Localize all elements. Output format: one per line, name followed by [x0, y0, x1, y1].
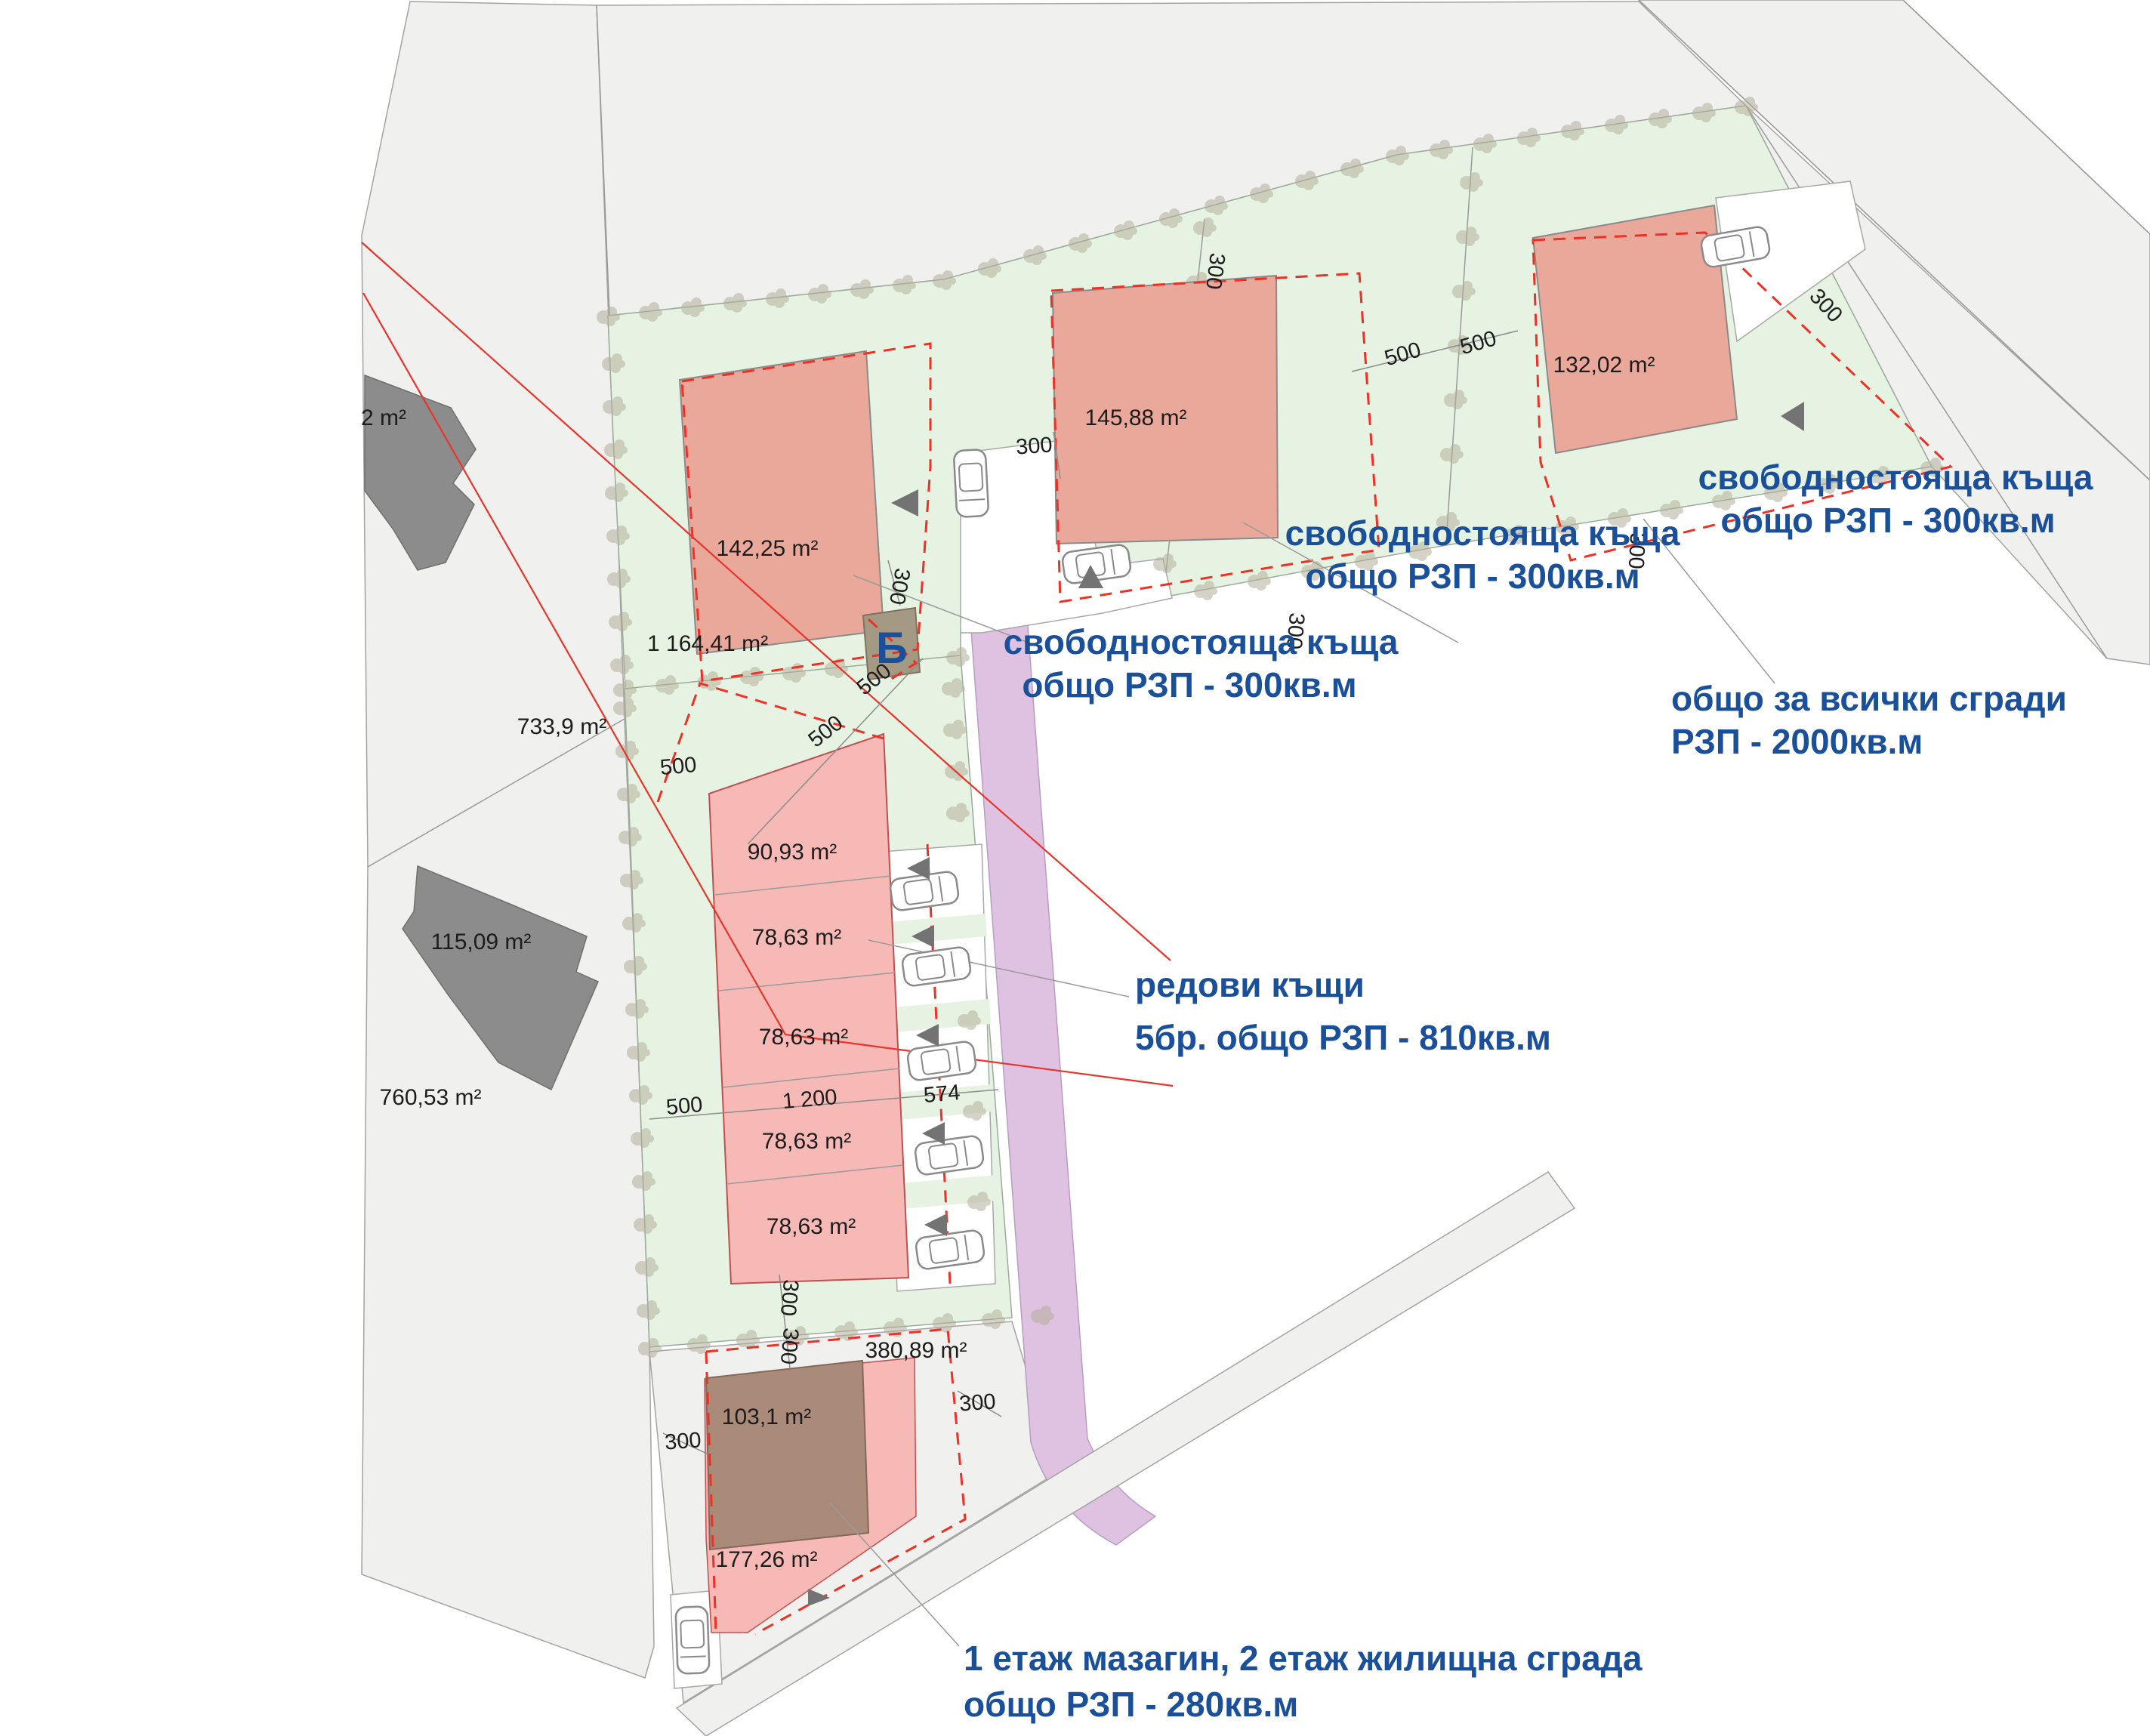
building-103: [706, 1361, 868, 1549]
annotation-rowhouses-line1: редови къщи: [1135, 965, 1365, 1004]
area-label-78-1: 78,63 m²: [752, 925, 841, 950]
dim-300: 300: [1201, 251, 1229, 291]
annotation-detached-lower-line2: общо РЗП - 300кв.м: [1022, 665, 1356, 705]
dim-300: 300: [1015, 433, 1053, 459]
annotation-detached-middle-line1: свободностояща къща: [1285, 513, 1680, 553]
dim-300: 300: [776, 1327, 803, 1365]
area-label-115: 115,09 m²: [431, 930, 532, 954]
car-icon: [675, 1606, 709, 1673]
dim-1200: 1 200: [782, 1085, 838, 1114]
area-label-733: 733,9 m²: [517, 714, 606, 739]
dim-300: 300: [776, 1278, 803, 1317]
annotation-total-line1: общо за всички сгради: [1671, 679, 2067, 718]
dim-300: 300: [958, 1389, 997, 1416]
annotation-detached-top-right-line1: свободностояща къща: [1698, 458, 2093, 497]
dim-574: 574: [923, 1081, 961, 1108]
annotation-rowhouses-line2: 5бр. общо РЗП - 810кв.м: [1135, 1018, 1551, 1057]
site-plan-svg: 142,25 m² 145,88 m² 132,02 m² 1 164,41 m…: [0, 0, 2150, 1736]
area-label-132: 132,02 m²: [1553, 353, 1655, 378]
area-label-103: 103,1 m²: [722, 1405, 811, 1429]
annotation-detached-lower-line1: свободностояща къща: [1004, 622, 1399, 661]
annotation-total-line2: РЗП - 2000кв.м: [1671, 722, 1923, 761]
dim-500: 500: [665, 1093, 704, 1120]
area-label-90: 90,93 m²: [748, 840, 837, 865]
area-label-78-2: 78,63 m²: [759, 1025, 848, 1050]
annotation-detached-top-right-line2: общо РЗП - 300кв.м: [1720, 501, 2055, 540]
area-label-78-3: 78,63 m²: [762, 1129, 851, 1154]
area-label-177: 177,26 m²: [715, 1547, 817, 1572]
car-icon: [954, 449, 989, 517]
dim-500: 500: [659, 753, 698, 780]
area-label-145: 145,88 m²: [1084, 405, 1186, 430]
annotation-detached-middle-line2: общо РЗП - 300кв.м: [1305, 557, 1639, 596]
area-label-760: 760,53 m²: [379, 1085, 481, 1110]
area-label-78-4: 78,63 m²: [767, 1214, 856, 1239]
rowhouse-block: [709, 734, 908, 1284]
dim-300: 300: [664, 1428, 702, 1454]
area-label-1164: 1 164,41 m²: [647, 631, 768, 656]
blue-annotations: свободностояща къща общо РЗП - 300кв.м с…: [964, 458, 2093, 1724]
annotation-mixed-use-line2: общо РЗП - 280кв.м: [964, 1685, 1298, 1724]
site-plan-page: 142,25 m² 145,88 m² 132,02 m² 1 164,41 m…: [0, 0, 2150, 1736]
annotation-mixed-use-line1: 1 етаж мазагин, 2 етаж жилищна сграда: [964, 1639, 1643, 1678]
area-label-2-clipped: 2 m²: [361, 405, 406, 430]
area-label-380: 380,89 m²: [865, 1338, 967, 1363]
area-label-142: 142,25 m²: [716, 536, 818, 561]
building-142: [680, 351, 884, 654]
